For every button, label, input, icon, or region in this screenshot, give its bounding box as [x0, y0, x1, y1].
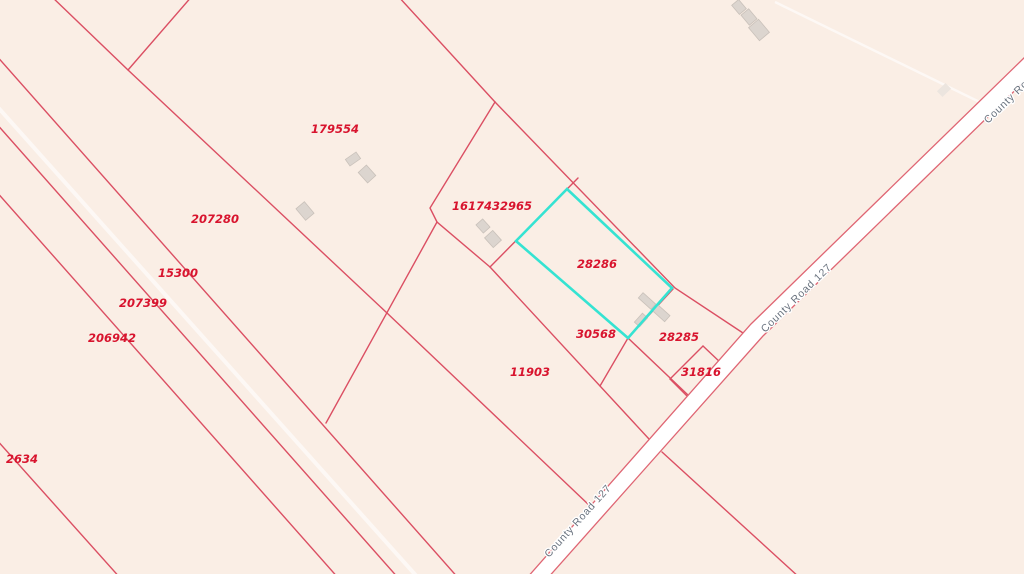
faint-line [0, 104, 420, 574]
parcel-label-28286: 28286 [577, 257, 617, 271]
parcel-label-179554: 179554 [311, 122, 359, 136]
building [345, 152, 360, 166]
parcel-label-31816: 31816 [681, 365, 721, 379]
parcel-label-206942: 206942 [88, 331, 136, 345]
map-canvas[interactable]: 1795542072801530020739920694226341617432… [0, 0, 1024, 574]
road-name-label: County Road 127 [759, 261, 835, 335]
parcel-boundaries [0, 0, 800, 574]
building [937, 83, 951, 97]
parcel-label-207280: 207280 [191, 212, 239, 226]
building [476, 219, 490, 233]
parcel-label-2634: 2634 [6, 452, 38, 466]
building [638, 293, 655, 310]
parcel-label-28285: 28285 [659, 330, 699, 344]
parcel-map[interactable]: 1795542072801530020739920694226341617432… [0, 0, 1024, 574]
parcel-label-11903: 11903 [510, 365, 550, 379]
parcel-label-207399: 207399 [119, 296, 167, 310]
parcel-label-1617432965: 1617432965 [452, 199, 532, 213]
faint-line [775, 2, 1000, 112]
faint-lines [0, 2, 1000, 574]
parcel-label-15300: 15300 [158, 266, 198, 280]
building [296, 202, 314, 221]
parcel-label-30568: 30568 [576, 327, 616, 341]
buildings [296, 0, 951, 327]
building [485, 230, 502, 247]
building [358, 165, 376, 183]
